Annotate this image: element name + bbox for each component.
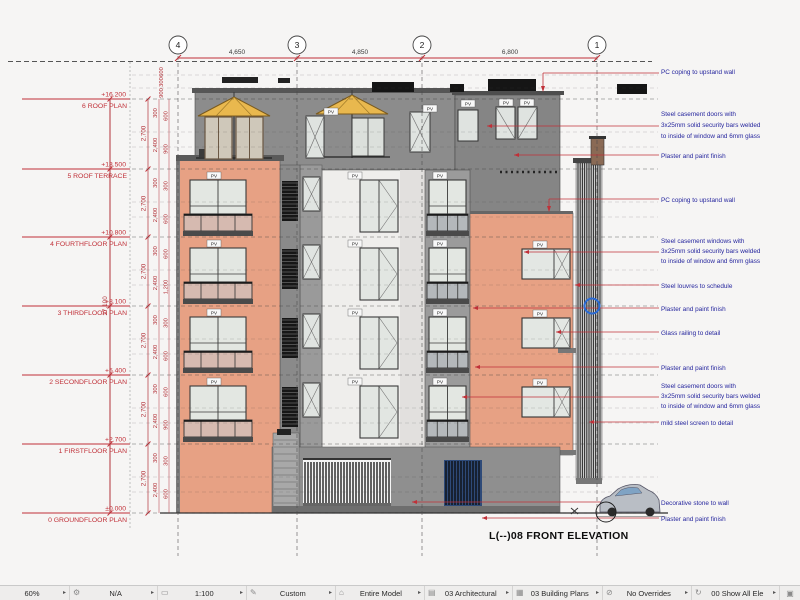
annotation-text: PC coping to upstand wall <box>661 197 735 204</box>
view-title: L(--)08 FRONT ELEVATION <box>489 530 629 542</box>
annotation-text: mild steel screen to detail <box>661 420 733 427</box>
annotation-text: Plaster and paint finish <box>661 365 726 372</box>
dim-text: 300 <box>164 456 170 466</box>
panel-icon: ▣ <box>786 589 794 598</box>
dim-text: 300 <box>153 453 159 463</box>
pv-label: PV <box>437 242 444 247</box>
annotation-text: 3x25mm solid security bars welded <box>661 122 761 129</box>
archicad-window: PVPVPVPVPV PVPVPVPVPVPVPVPVPVPVPVPVPVPVP… <box>0 0 800 600</box>
dim-text: 300 <box>153 246 159 256</box>
level-elevation: ±0.000 <box>105 506 126 513</box>
level-name: 1 FIRSTFLOOR PLAN <box>59 448 127 455</box>
material-annotations: PC coping to upstand wallSteel casement … <box>661 69 761 523</box>
dim-text: 600 <box>164 111 170 121</box>
pv-label: PV <box>503 101 510 106</box>
pv-label: PV <box>524 101 531 106</box>
annotation-text: to inside of window and 6mm glass <box>661 133 760 140</box>
dim-text: 17,100 <box>102 296 109 316</box>
dim-text: 300 <box>153 108 159 118</box>
annotation-text: Steel casement windows with <box>661 238 745 245</box>
level-elevation: +10.800 <box>101 230 126 237</box>
louvre-vent <box>282 181 298 221</box>
louvre-vent <box>282 249 298 289</box>
dim-text: 600 <box>159 67 165 77</box>
pen-set-icon: ✎ <box>250 589 257 597</box>
dim-text: 2,700 <box>141 470 148 486</box>
level-elevation: +16.200 <box>101 92 126 99</box>
dim-text: 1,200 <box>164 280 170 295</box>
balcony-slab <box>183 368 253 373</box>
dim-text: 2,700 <box>141 263 148 279</box>
annotation-text: Steel louvres to schedule <box>661 283 733 290</box>
steel-screen-gate <box>305 462 389 503</box>
statusbar-zoom[interactable]: 60% ▸ <box>0 586 70 600</box>
plinth <box>272 506 560 513</box>
menu-arrow-icon: ▸ <box>773 590 776 596</box>
balcony-slab <box>183 231 253 236</box>
annotation-text: PC coping to upstand wall <box>661 69 735 76</box>
statusbar-scale[interactable]: ▭ 1:100 ▸ <box>158 586 247 600</box>
annotation-text: Plaster and paint finish <box>661 153 726 160</box>
level-markers: +16.2006 ROOF PLAN+13.5005 ROOF TERRACE+… <box>22 92 151 525</box>
dim-text: 2,400 <box>153 483 159 498</box>
annotation-text: Steel casement doors with <box>661 383 736 390</box>
status-bar: 60% ▸ ⚙ N/A ▸ ▭ 1:100 ▸ ✎ Custom ▸ ⌂ Ent… <box>0 585 800 600</box>
menu-arrow-icon: ▸ <box>329 590 332 596</box>
balcony-slab <box>183 299 253 304</box>
dim-text: 2,700 <box>141 332 148 348</box>
pv-label: PV <box>437 174 444 179</box>
dim-text: 600 <box>164 489 170 499</box>
menu-arrow-icon: ▸ <box>63 590 66 596</box>
pv-label: PV <box>328 110 335 115</box>
dim-text: 2,700 <box>141 125 148 141</box>
balcony-slab <box>426 368 469 373</box>
level-name: 5 ROOF TERRACE <box>67 173 127 180</box>
pv-label: PV <box>352 311 359 316</box>
right-wing-coping <box>470 211 573 214</box>
dim-text: 300 <box>164 181 170 191</box>
parapet-coping <box>452 91 564 95</box>
balcony-slab <box>183 437 253 442</box>
zoom-value: 60% <box>3 589 61 598</box>
level-elevation: +13.500 <box>101 162 126 169</box>
dim-text: 2,400 <box>153 138 159 153</box>
menu-arrow-icon: ▸ <box>685 590 688 596</box>
menu-arrow-icon: ▸ <box>240 590 243 596</box>
grid-bubble-number: 4 <box>176 40 181 50</box>
dim-text: 2,700 <box>141 195 148 211</box>
pv-label: PV <box>437 380 444 385</box>
annotation-text: Plaster and paint finish <box>661 516 726 523</box>
annotation-text: Decorative stone to wall <box>661 500 729 507</box>
dim-text: 2,400 <box>153 208 159 223</box>
level-name: 6 ROOF PLAN <box>82 103 127 110</box>
statusbar-graphic-overrides[interactable]: ⊘ No Overrides ▸ <box>603 586 692 600</box>
dim-text: 300 <box>159 77 165 87</box>
graphic-overrides-icon: ⊘ <box>606 589 613 597</box>
louvre-vent <box>282 387 298 427</box>
balcony-slab <box>426 231 469 236</box>
center-wall-shade <box>400 170 425 455</box>
statusbar-pen-set[interactable]: ✎ Custom ▸ <box>247 586 336 600</box>
annotation-text: to inside of window and 6mm glass <box>661 258 760 265</box>
pv-label: PV <box>211 311 218 316</box>
menu-arrow-icon: ▸ <box>506 590 509 596</box>
car <box>596 485 665 517</box>
dim-text: 300 <box>164 318 170 328</box>
pv-label: PV <box>211 380 218 385</box>
window <box>522 387 570 417</box>
level-name: 0 GROUNDFLOOR PLAN <box>48 517 127 524</box>
menu-arrow-icon: ▸ <box>596 590 599 596</box>
dim-text: 2,700 <box>141 401 148 417</box>
pv-label: PV <box>352 380 359 385</box>
grid-span-dim: 4,650 <box>229 49 246 56</box>
annotation-text: Glass railing to detail <box>661 330 720 337</box>
balcony-slab <box>426 437 469 442</box>
dim-text: 300 <box>153 384 159 394</box>
pv-label: PV <box>437 311 444 316</box>
louvre-vent <box>282 318 298 358</box>
dim-text: 2,400 <box>153 276 159 291</box>
dim-text: 300 <box>153 315 159 325</box>
dim-text: 900 <box>159 88 165 98</box>
statusbar-model-view-options[interactable]: ▦ 03 Building Plans ▸ <box>513 586 603 600</box>
elevation-drawing: PVPVPVPVPV PVPVPVPVPVPVPVPVPVPVPVPVPVPVP… <box>0 0 800 586</box>
dim-text: 900 <box>164 144 170 154</box>
pv-label: PV <box>537 381 544 386</box>
pv-label: PV <box>211 174 218 179</box>
stone-pier <box>273 433 299 513</box>
dim-text: 900 <box>164 420 170 430</box>
pv-label: PV <box>427 107 434 112</box>
vertical-dimensions: 17,1002,7003002,4006009002,7003002,40030… <box>102 67 170 513</box>
annotation-text: 3x25mm solid security bars welded <box>661 248 761 255</box>
menu-arrow-icon: ▸ <box>418 590 421 596</box>
chimney <box>589 136 606 165</box>
orientation-icon: ⚙ <box>73 589 80 597</box>
dim-text: 600 <box>164 249 170 259</box>
pv-label: PV <box>465 102 472 107</box>
statusbar-renovation-filter[interactable]: ↻ 00 Show All Ele ▸ <box>692 586 780 600</box>
model-view-options-icon: ▦ <box>516 589 524 597</box>
level-name: 4 FOURTHFLOOR PLAN <box>50 241 127 248</box>
scale-icon: ▭ <box>161 589 169 597</box>
layer-combination-icon: ▤ <box>428 589 436 597</box>
dim-text: 600 <box>164 387 170 397</box>
parapet-coping <box>192 88 458 93</box>
dim-text: 2,400 <box>153 414 159 429</box>
dim-text: 600 <box>164 214 170 224</box>
annotation-text: 3x25mm solid security bars welded <box>661 393 761 400</box>
leader-arrow <box>482 516 487 520</box>
level-elevation: +2.700 <box>105 437 126 444</box>
window <box>522 318 570 348</box>
dim-text: 300 <box>153 178 159 188</box>
annotation-text: to inside of window and 6mm glass <box>661 403 760 410</box>
pv-label: PV <box>537 243 544 248</box>
level-elevation: +5.400 <box>105 368 126 375</box>
statusbar-extra[interactable]: ▣ <box>780 586 800 600</box>
annotation-text: Plaster and paint finish <box>661 306 726 313</box>
grid-span-dim: 6,800 <box>502 49 519 56</box>
renovation-filter-icon: ↻ <box>695 589 702 597</box>
dim-text: 600 <box>164 351 170 361</box>
level-name: 2 SECONDFLOOR PLAN <box>49 379 127 386</box>
pv-label: PV <box>537 312 544 317</box>
statusbar-structure-filter[interactable]: ⌂ Entire Model ▸ <box>336 586 425 600</box>
pv-label: PV <box>352 174 359 179</box>
grid-bubble-number: 2 <box>420 40 425 50</box>
grid-span-dim: 4,850 <box>352 49 369 56</box>
level-name: 3 THIRDFLOOR PLAN <box>58 310 127 317</box>
pv-label: PV <box>352 242 359 247</box>
statusbar-orientation[interactable]: ⚙ N/A ▸ <box>70 586 158 600</box>
statusbar-layer-combination[interactable]: ▤ 03 Architectural ▸ <box>425 586 513 600</box>
structure-filter-icon: ⌂ <box>339 589 344 597</box>
balcony-slab <box>426 299 469 304</box>
dim-text: 2,400 <box>153 345 159 360</box>
grid-bubble-number: 3 <box>295 40 300 50</box>
building-facade: PVPVPVPVPV PVPVPVPVPVPVPVPVPVPVPVPVPVPVP… <box>160 77 668 513</box>
menu-arrow-icon: ▸ <box>151 590 154 596</box>
grid-bubble-number: 1 <box>595 40 600 50</box>
window <box>522 249 570 279</box>
pv-label: PV <box>211 242 218 247</box>
annotation-text: Steel casement doors with <box>661 111 736 118</box>
